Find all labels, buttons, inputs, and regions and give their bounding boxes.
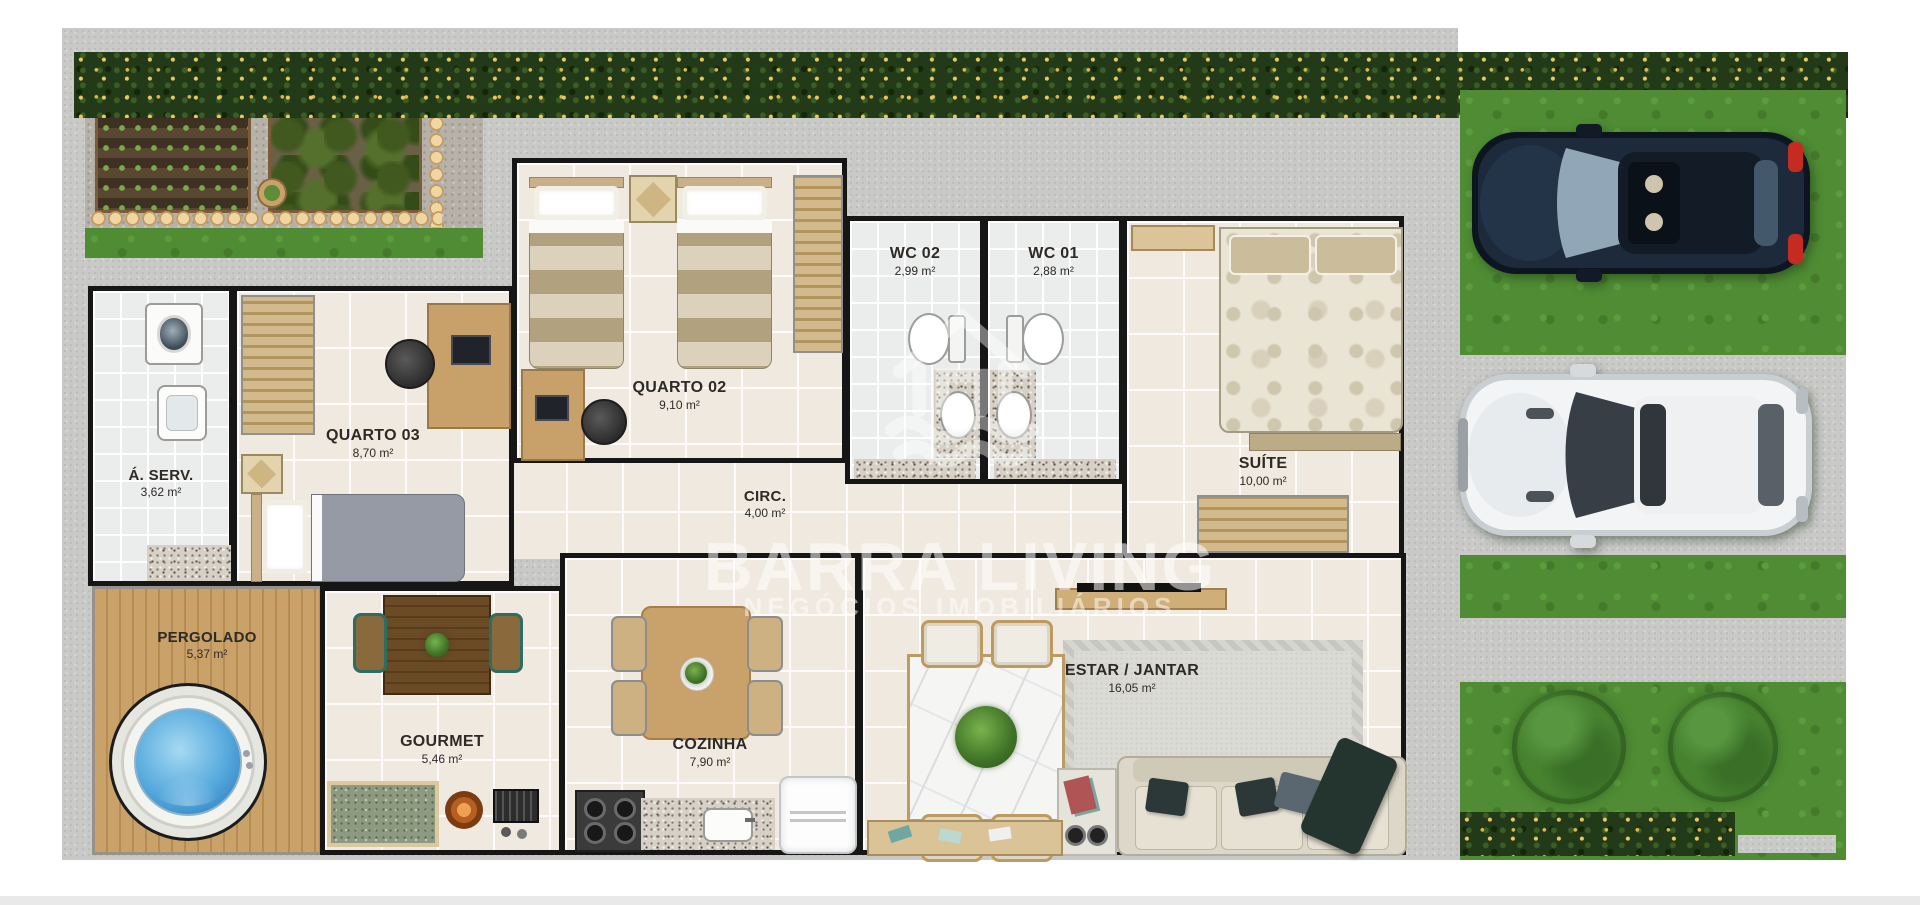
wardrobe: [793, 175, 843, 353]
grill: [493, 789, 539, 823]
laundry-sink: [157, 385, 207, 441]
chair: [353, 613, 387, 673]
counter: [147, 545, 231, 581]
gourmet-table: [383, 595, 491, 695]
room-quarto02: QUARTO 02 9,10 m²: [512, 158, 847, 463]
room-pergolado: PERGOLADO 5,37 m²: [92, 586, 322, 855]
twin-bed-1: [529, 177, 624, 369]
room-area: 2,88 m²: [988, 264, 1119, 278]
room-label: GOURMET: [325, 733, 559, 751]
bottles: [501, 827, 511, 837]
room-quarto03: QUARTO 03 8,70 m²: [232, 286, 514, 586]
round-tree-right: [1668, 692, 1778, 802]
sofa: [1117, 756, 1407, 856]
chair: [747, 680, 783, 736]
stove: [575, 790, 645, 852]
round-tree-left: [1512, 690, 1626, 804]
log-edging-bottom: [90, 210, 442, 228]
bar-cart: [1057, 768, 1117, 856]
room-label: WC 01: [988, 245, 1119, 263]
tv: [1077, 583, 1201, 592]
flower-hedge-bottom: [1460, 812, 1735, 856]
page-bottom-strip: [0, 896, 1920, 905]
kitchen-table: [641, 606, 751, 740]
small-pad: [1738, 835, 1836, 853]
garden-grass-strip: [85, 228, 483, 258]
room-label: SUÍTE: [1127, 455, 1399, 473]
table-plant: [955, 706, 1017, 768]
floor-plan: QUARTO 02 9,10 m² WC 02 2,99 m² WC 01 2,…: [0, 0, 1920, 905]
nightstand: [629, 175, 677, 223]
pillow: [1229, 235, 1311, 275]
laptop: [451, 335, 491, 365]
room-label: Á. SERV.: [93, 467, 229, 484]
bed-bench: [1249, 433, 1401, 451]
sideboard: [867, 820, 1063, 856]
room-area: 2,99 m²: [850, 264, 980, 278]
twin-bed-2: [677, 177, 772, 369]
shelf: [1131, 225, 1215, 251]
fridge: [779, 776, 857, 854]
garden-planter: [257, 178, 287, 208]
washer: [145, 303, 203, 365]
chair: [489, 613, 523, 673]
parking-strip-2: [1460, 618, 1846, 682]
single-bed: [251, 494, 465, 582]
room-suite: SUÍTE 10,00 m²: [1122, 216, 1404, 566]
toilet-tank: [948, 315, 966, 363]
room-label: PERGOLADO: [95, 629, 319, 646]
room-estar: ESTAR / JANTAR 16,05 m²: [858, 553, 1406, 855]
chair: [611, 616, 647, 672]
dining-chair: [921, 620, 983, 668]
toilet: [1022, 313, 1064, 365]
shower-floor: [994, 459, 1116, 479]
nightstand: [241, 454, 283, 494]
bathroom-sink: [940, 391, 976, 439]
laptop: [535, 395, 569, 421]
room-area: 5,37 m²: [95, 647, 319, 661]
room-wc02: WC 02 2,99 m²: [845, 216, 985, 484]
desk-chair: [581, 399, 627, 445]
garden-bed-bushes: [268, 115, 422, 213]
dark-car: [1468, 122, 1814, 284]
room-area: 3,62 m²: [93, 485, 229, 499]
chair: [747, 616, 783, 672]
gourmet-counter: [327, 781, 439, 847]
room-gourmet: GOURMET 5,46 m²: [320, 586, 564, 855]
pillow: [1315, 235, 1397, 275]
room-area: 7,90 m²: [565, 755, 855, 769]
toilet: [908, 313, 950, 365]
wardrobe: [241, 295, 315, 435]
room-label: WC 02: [850, 245, 980, 263]
clay-oven: [445, 791, 483, 829]
desk-chair: [385, 339, 435, 389]
bathroom-sink: [996, 391, 1032, 439]
kitchen-counter: [641, 798, 775, 850]
room-cozinha: COZINHA 7,90 m²: [560, 553, 860, 855]
room-aserv: Á. SERV. 3,62 m²: [88, 286, 234, 586]
room-area: 10,00 m²: [1127, 474, 1399, 488]
room-wc01: WC 01 2,88 m²: [983, 216, 1124, 484]
garden-bed-rows: [95, 115, 251, 213]
hot-tub: [109, 683, 267, 841]
double-bed: [1219, 227, 1403, 433]
chair: [611, 680, 647, 736]
white-car: [1456, 362, 1818, 550]
wardrobe: [1197, 495, 1349, 553]
room-area: 5,46 m²: [325, 752, 559, 766]
right-yard: [1460, 90, 1846, 860]
desk: [427, 303, 511, 429]
shower-floor: [854, 459, 976, 479]
dining-chair: [991, 620, 1053, 668]
